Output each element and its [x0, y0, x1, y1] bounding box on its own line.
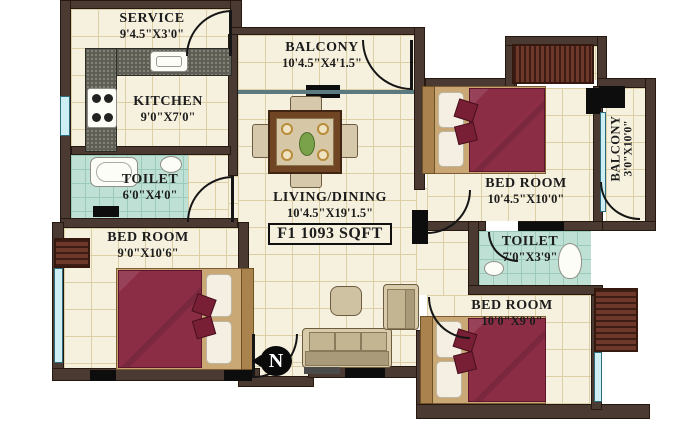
bed-bottom-right-blanket — [468, 318, 546, 402]
bedroom-top-right-dims: 10'4.5"X10'0" — [452, 192, 600, 206]
toilet-right-name: TOILET — [472, 234, 588, 250]
bedroom-br-window — [594, 352, 602, 402]
living-dining-label: LIVING/DINING 10'4.5"X19'1.5" F1 1093 SQ… — [248, 190, 412, 245]
north-compass: N — [260, 346, 292, 376]
bedroom-bottom-right-label: BED ROOM 10'0"X9'0" — [448, 298, 576, 328]
tv-unit — [304, 367, 340, 374]
wall-balcony-right-bottom — [597, 221, 656, 231]
service-dims: 9'4.5"X3'0" — [92, 27, 212, 41]
wall-balcony-top — [230, 27, 422, 35]
bedroom-bottom-right-name: BED ROOM — [448, 298, 576, 314]
service-name: SERVICE — [92, 11, 212, 27]
wardrobe-bottom-right — [594, 288, 638, 352]
balcony-right-dims: 3'0"X10'0" — [623, 88, 636, 208]
bed-left-blanket — [118, 270, 202, 368]
living-dining-name: LIVING/DINING — [248, 190, 412, 206]
wall-service-top — [60, 0, 240, 9]
bedroom-left-label: BED ROOM 9'0"X10'6" — [88, 230, 208, 260]
coffee-table — [330, 286, 362, 316]
kitchen-window — [60, 96, 70, 136]
kitchen-label: KITCHEN 9'0"X7'0" — [112, 94, 224, 124]
washbasin-left — [160, 156, 182, 173]
door-bedroom-left-leaf — [231, 176, 234, 222]
bed-bottom-right-headboard — [420, 316, 433, 404]
bed-top-right-blanket — [469, 88, 545, 172]
kitchen-name: KITCHEN — [112, 94, 224, 110]
toilet-left-dims: 6'0"X4'0" — [95, 188, 205, 202]
dining-chair-right — [340, 124, 358, 158]
column-toilet-right-top — [518, 222, 564, 231]
bedroom-left-name: BED ROOM — [88, 230, 208, 246]
toilet-right-dims: 7'0"X3'9" — [472, 250, 588, 264]
north-compass-label: N — [269, 350, 283, 373]
balcony-top-railing — [238, 90, 414, 94]
column-toilet-left — [93, 206, 119, 217]
wall-balcony-right-outer — [645, 78, 656, 231]
service-label: SERVICE 9'4.5"X3'0" — [92, 11, 212, 41]
armchair — [383, 284, 419, 330]
balcony-top-label: BALCONY 10'4.5"X4'1.5" — [252, 40, 392, 70]
wardrobe-bedroom-left — [54, 238, 90, 268]
bedroom-left-window — [54, 268, 63, 363]
bedroom-top-right-name: BED ROOM — [452, 176, 600, 192]
living-dining-dims: 10'4.5"X19'1.5" — [248, 206, 412, 220]
bedroom-top-right-label: BED ROOM 10'4.5"X10'0" — [452, 176, 600, 206]
column-hall — [412, 210, 428, 244]
balcony-right-name: BALCONY — [609, 88, 623, 208]
door-balcony-top-leaf — [410, 40, 413, 90]
balcony-top-dims: 10'4.5"X4'1.5" — [252, 56, 392, 70]
sofa — [302, 328, 392, 368]
balcony-right-label: BALCONY 3'0"X10'0" — [609, 88, 636, 208]
bedroom-left-dims: 9'0"X10'6" — [88, 246, 208, 260]
wardrobe-top-right — [512, 44, 594, 84]
door-service-leaf — [229, 10, 232, 56]
toilet-right-label: TOILET 7'0"X3'9" — [472, 234, 588, 264]
dining-table — [268, 110, 342, 174]
column-living-bottom — [345, 368, 385, 378]
balcony-top-name: BALCONY — [252, 40, 392, 56]
bedroom-bottom-right-dims: 10'0"X9'0" — [448, 314, 576, 328]
column-bedroom-left-1 — [90, 370, 116, 381]
toilet-left-label: TOILET 6'0"X4'0" — [95, 172, 205, 202]
kitchen-sink — [150, 51, 188, 72]
wall-bedroom-br-bottom — [416, 404, 650, 419]
wall-toilet-right-bottom — [468, 285, 603, 295]
column-bedroom-left-2 — [224, 370, 252, 381]
bed-top-right-headboard — [422, 86, 435, 174]
floor-plan: N SERVICE 9'4.5"X3'0" BALCONY 10'4.5"X4'… — [0, 0, 700, 427]
kitchen-dims: 9'0"X7'0" — [112, 110, 224, 124]
toilet-left-name: TOILET — [95, 172, 205, 188]
area-box: F1 1093 SQFT — [268, 223, 392, 245]
